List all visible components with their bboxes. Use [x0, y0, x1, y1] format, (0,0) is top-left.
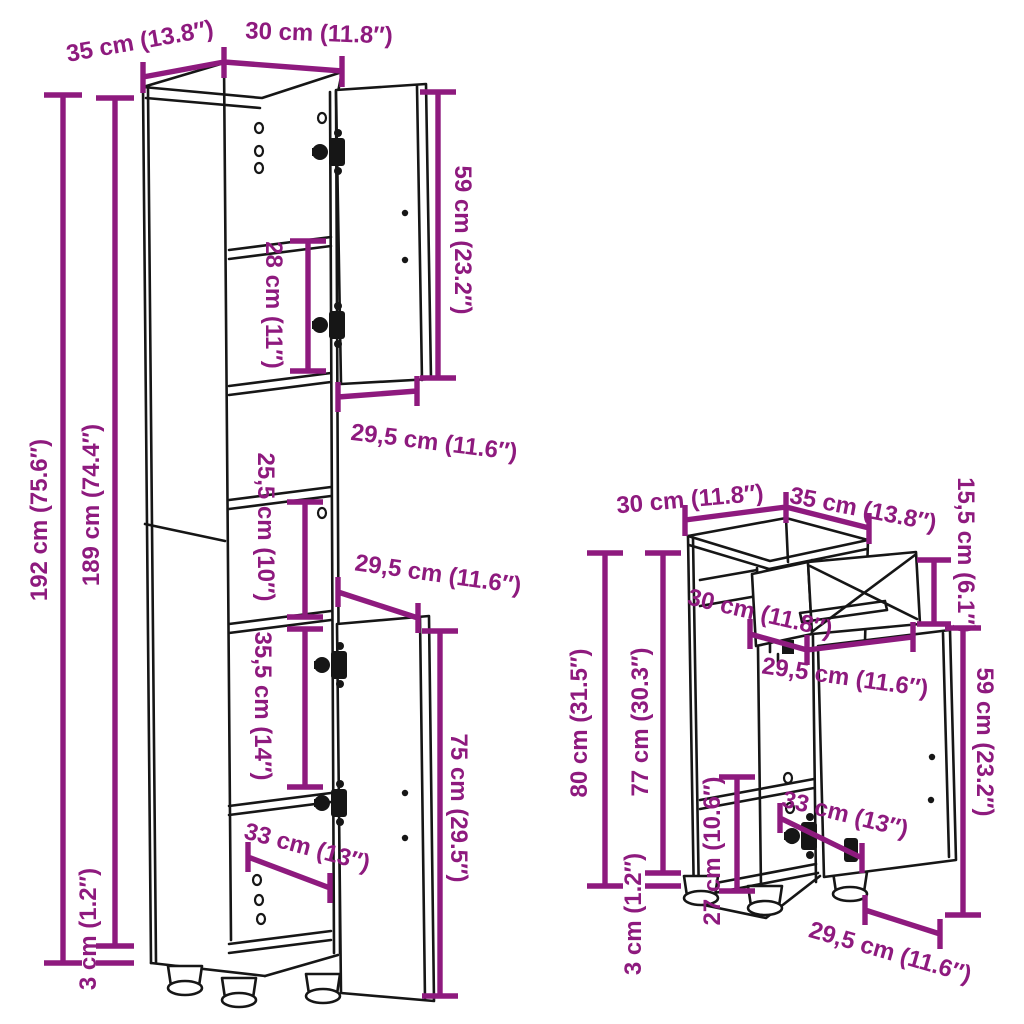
dim-label-tall-lower-compartment: 35,5 cm (14″): [250, 632, 274, 781]
dim-label-small-total-height: 80 cm (31.5″): [568, 649, 592, 798]
dim-label-tall-lower-door-height: 75 cm (29.5″): [446, 734, 470, 883]
dim-label-tall-total-height: 192 cm (75.6″): [28, 439, 52, 601]
dim-label-small-shelf-compartment: 27 cm (10.6″): [701, 777, 725, 926]
dimension-diagram: 35 cm (13.8″) 30 cm (11.8″) 192 cm (75.6…: [0, 0, 1024, 1024]
dim-label-small-foot-height: 3 cm (1.2″): [622, 853, 646, 975]
dim-label-small-door-height: 59 cm (23.2″): [972, 668, 996, 817]
dim-label-small-carcass-height: 77 cm (30.3″): [629, 648, 653, 797]
dim-label-tall-upper-compartment: 28 cm (11″): [261, 241, 285, 369]
tall-cabinet-drawing: [143, 63, 434, 1007]
dim-label-small-drawer-height: 15,5 cm (6.1″): [953, 477, 977, 633]
dim-label-tall-carcass-height: 189 cm (74.4″): [80, 424, 104, 586]
dim-label-tall-middle-compartment: 25,5 cm (10″): [253, 453, 277, 602]
dim-label-tall-foot-height: 3 cm (1.2″): [77, 868, 101, 990]
dim-label-tall-top-width: 30 cm (11.8″): [245, 19, 393, 48]
dim-label-tall-upper-door-height: 59 cm (23.2″): [450, 166, 474, 315]
